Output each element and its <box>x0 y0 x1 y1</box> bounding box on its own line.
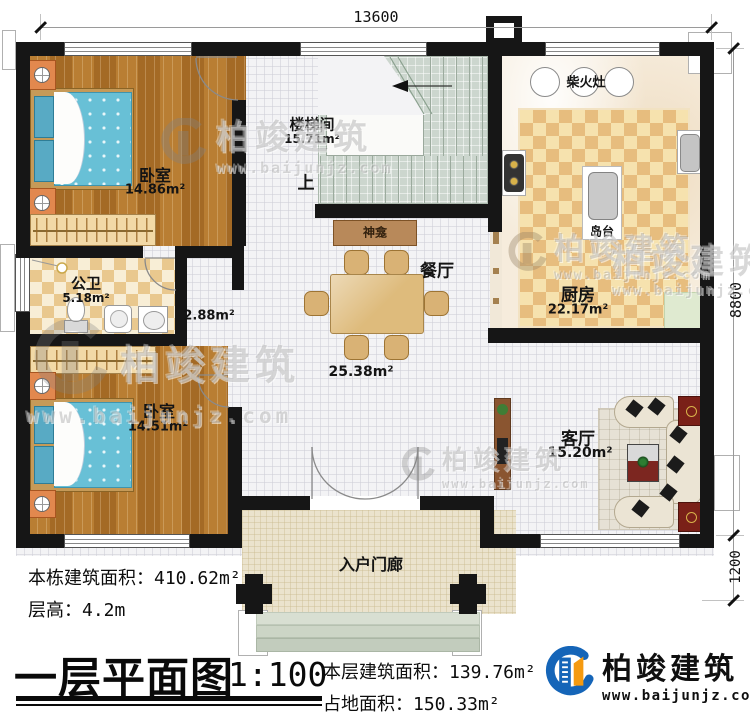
dimension-line-top <box>40 27 712 28</box>
stair-treads-lower <box>320 156 486 203</box>
floor-height-stat: 层高：4.2m <box>28 596 125 622</box>
chimney-flue <box>494 23 514 38</box>
wall <box>232 246 244 290</box>
scale-value: 1:100 <box>228 655 327 694</box>
ac-platform <box>2 30 16 70</box>
wall <box>228 407 242 534</box>
wall <box>700 42 714 548</box>
dining-label: 餐厅 <box>420 257 454 282</box>
dimension-line-right <box>733 48 734 600</box>
brand-block: 柏竣建筑 www.baijunjz.com <box>536 644 750 704</box>
bed2-pillow <box>34 406 54 444</box>
floor-plan-page: 卧室 14.86m² 楼梯间 15.71m² 上 神龛 柴火灶 岛台 厨房 22… <box>0 0 750 716</box>
bedroom2-wardrobe <box>30 346 156 374</box>
lamp-icon <box>34 195 50 211</box>
entry-opening <box>310 496 420 510</box>
shrine-label: 神龛 <box>363 224 387 241</box>
window <box>64 42 192 56</box>
bedroom2-label: 卧室 <box>143 398 175 422</box>
stair-up-label: 上 <box>298 169 315 194</box>
stove-pot <box>530 67 560 97</box>
living-area: 15.20m² <box>547 445 612 461</box>
bath-area: 5.18m² <box>62 291 109 305</box>
sofa-chaise-top <box>614 396 674 428</box>
floor-area-stat: 本层建筑面积：139.76m² <box>323 658 536 684</box>
kitchen-side-sink <box>680 134 700 172</box>
lamp-icon <box>34 67 50 83</box>
window <box>540 534 680 548</box>
wall <box>232 100 246 246</box>
footprint-stat: 占地面积：150.33m² <box>323 690 500 716</box>
dining-chair <box>304 291 329 316</box>
washing-machine-door <box>110 310 128 328</box>
bed2-nightstand <box>28 490 56 518</box>
stair-void <box>326 114 424 156</box>
kitchen-mat <box>664 292 702 330</box>
tv-set <box>497 438 508 464</box>
island-sink <box>588 172 618 220</box>
stair-treads-upper <box>430 57 487 156</box>
bedroom1-wardrobe <box>30 214 156 246</box>
dim-side-value: 8800 <box>727 282 745 318</box>
title-underline-thin <box>16 704 322 706</box>
building-area-stat: 本栋建筑面积：410.62m² <box>28 564 241 590</box>
brand-logo-icon <box>536 646 594 702</box>
kitchen-area: 22.17m² <box>548 303 608 318</box>
wall <box>192 42 300 56</box>
dining-chair <box>344 250 369 275</box>
wall <box>480 496 494 548</box>
lamp-icon <box>34 378 50 394</box>
wall <box>16 312 30 548</box>
dining-table <box>330 274 424 334</box>
dining-chair <box>344 335 369 360</box>
dim-top-value: 13600 <box>349 8 402 26</box>
dining-area: 25.38m² <box>328 364 393 380</box>
gas-hob <box>504 154 524 192</box>
kitchen-threshold <box>490 232 502 328</box>
wall <box>488 56 502 232</box>
dining-chair <box>384 335 409 360</box>
corridor-area: 2.88m² <box>183 309 234 324</box>
title-underline <box>16 696 322 701</box>
window <box>64 534 190 548</box>
bedroom1-area: 14.86m² <box>125 183 185 198</box>
wall <box>488 328 714 343</box>
wall <box>427 42 545 56</box>
window <box>545 42 660 56</box>
bath-sink-basin <box>143 311 165 330</box>
dining-chair <box>384 250 409 275</box>
window <box>300 42 427 56</box>
bed1-nightstand <box>28 60 56 90</box>
porch-step <box>256 612 480 625</box>
dining-chair <box>424 291 449 316</box>
stove-pot <box>604 67 634 97</box>
wall <box>16 534 64 548</box>
wall <box>16 42 30 254</box>
stove-label: 柴火灶 <box>566 72 605 91</box>
wall <box>680 534 714 548</box>
lamp-icon <box>34 496 50 512</box>
stair-area-label: 15.71m² <box>284 132 340 146</box>
porch-step <box>256 638 480 652</box>
coffee-table-plant <box>637 456 649 468</box>
bed1-pillow <box>34 140 54 182</box>
island-label: 岛台 <box>590 223 614 240</box>
ac-platform <box>0 244 15 332</box>
brand-site: www.baijunjz.com <box>602 688 750 704</box>
bed1-pillow <box>34 96 54 138</box>
wall <box>16 246 143 258</box>
dim-porch-value: 1200 <box>728 550 744 584</box>
bedroom2-area: 14.51m² <box>128 420 188 435</box>
window <box>15 254 30 312</box>
wall <box>16 334 187 346</box>
tv-plant <box>497 404 508 415</box>
porch-label: 入户门廊 <box>339 551 403 575</box>
ac-platform <box>714 455 740 511</box>
bed2-nightstand <box>28 372 56 400</box>
wall <box>315 204 492 218</box>
brand-name: 柏竣建筑 <box>602 644 750 688</box>
bed2-pillow <box>34 446 54 484</box>
porch-step <box>256 625 480 638</box>
